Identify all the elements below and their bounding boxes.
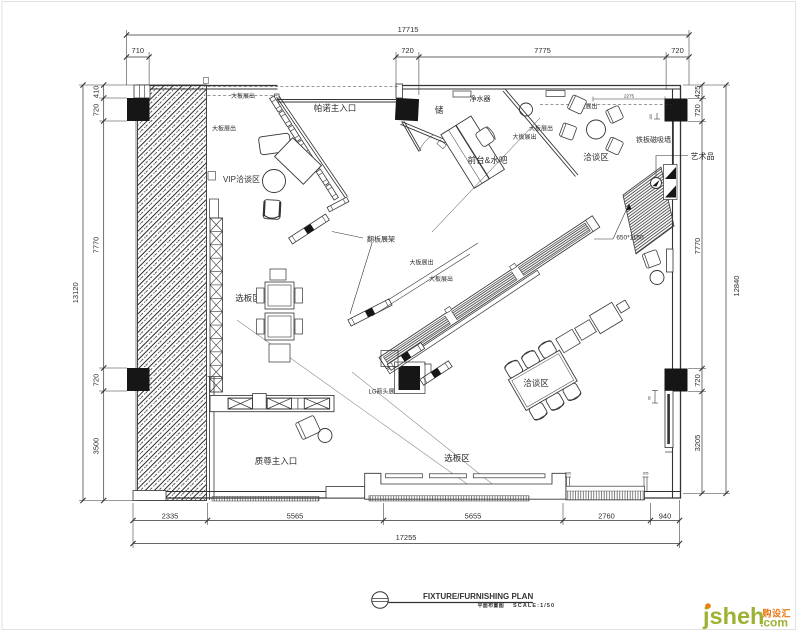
svg-text:LG箭头展: LG箭头展 <box>368 388 394 396</box>
svg-text:425: 425 <box>693 86 702 99</box>
svg-text:选板区: 选板区 <box>444 453 470 463</box>
svg-text:5655: 5655 <box>465 512 482 521</box>
svg-text:储: 储 <box>435 105 444 115</box>
svg-text:720: 720 <box>401 46 414 55</box>
svg-text:帕诺主入口: 帕诺主入口 <box>314 103 357 113</box>
svg-text:205: 205 <box>565 472 571 476</box>
svg-text:翻板展架: 翻板展架 <box>367 235 395 244</box>
svg-text:12840: 12840 <box>732 276 741 297</box>
svg-text:大板展出: 大板展出 <box>429 275 453 283</box>
svg-text:jsheh: jsheh <box>702 603 764 629</box>
svg-text:17255: 17255 <box>396 533 417 542</box>
svg-text:60: 60 <box>648 396 652 400</box>
svg-text:洽谈区: 洽谈区 <box>583 152 609 162</box>
svg-text:洽谈区: 洽谈区 <box>523 378 549 388</box>
svg-text:13120: 13120 <box>71 282 80 303</box>
svg-text:410: 410 <box>92 86 101 99</box>
svg-text:SCALE:1/50: SCALE:1/50 <box>513 603 555 609</box>
svg-text:720: 720 <box>693 104 702 117</box>
svg-text:7770: 7770 <box>92 237 101 254</box>
svg-text:3205: 3205 <box>693 435 702 452</box>
svg-text:前台&水吧: 前台&水吧 <box>468 155 508 165</box>
svg-text:720: 720 <box>92 374 101 387</box>
svg-text:2335: 2335 <box>162 512 179 521</box>
svg-text:铁板磁吸墙: 铁板磁吸墙 <box>636 135 671 144</box>
svg-text:17715: 17715 <box>398 25 419 34</box>
svg-text:205: 205 <box>643 472 649 476</box>
svg-text:大板展出: 大板展出 <box>231 92 255 100</box>
svg-text:100: 100 <box>649 114 653 120</box>
svg-text:650*1150: 650*1150 <box>616 235 644 242</box>
svg-text:3500: 3500 <box>92 438 101 455</box>
svg-text:艺术品: 艺术品 <box>691 151 715 161</box>
svg-text:940: 940 <box>659 512 672 521</box>
svg-text:720: 720 <box>693 374 702 387</box>
svg-text:7775: 7775 <box>534 46 551 55</box>
svg-text:FIXTURE/FURNISHING PLAN: FIXTURE/FURNISHING PLAN <box>423 592 533 601</box>
svg-text:7770: 7770 <box>693 238 702 255</box>
svg-text:720: 720 <box>671 46 684 55</box>
svg-text:2275: 2275 <box>624 94 635 99</box>
svg-text:大板展出: 大板展出 <box>212 125 236 133</box>
svg-text:净水器: 净水器 <box>470 94 491 103</box>
svg-text:5565: 5565 <box>287 512 304 521</box>
svg-text:平面布置图: 平面布置图 <box>478 602 505 609</box>
svg-text:质尊主入口: 质尊主入口 <box>255 456 298 466</box>
svg-text:VIP洽谈区: VIP洽谈区 <box>223 174 260 184</box>
svg-text:购设汇: 购设汇 <box>763 608 792 619</box>
svg-text:720: 720 <box>92 104 101 117</box>
svg-text:710: 710 <box>132 46 145 55</box>
svg-text:大板展出: 大板展出 <box>409 259 433 267</box>
svg-text:2760: 2760 <box>598 512 615 521</box>
